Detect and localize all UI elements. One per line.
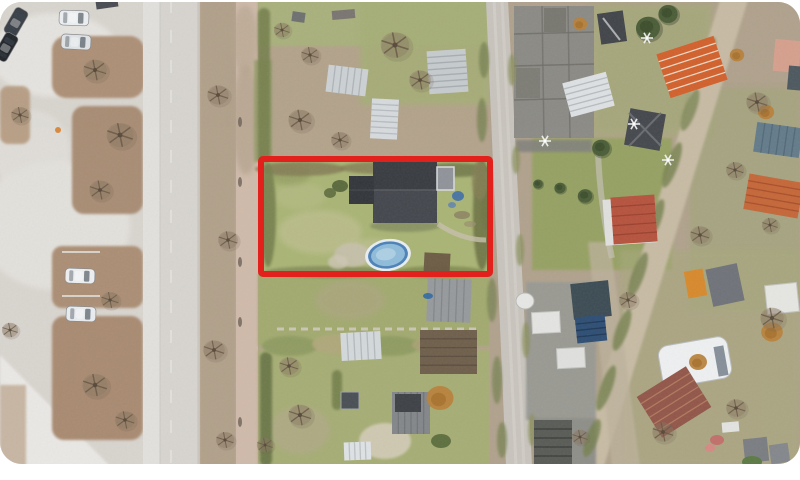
- photo-card: [0, 0, 800, 480]
- photo-grain: [0, 2, 800, 464]
- photo-content: [0, 0, 800, 468]
- aerial-photo: [0, 0, 800, 480]
